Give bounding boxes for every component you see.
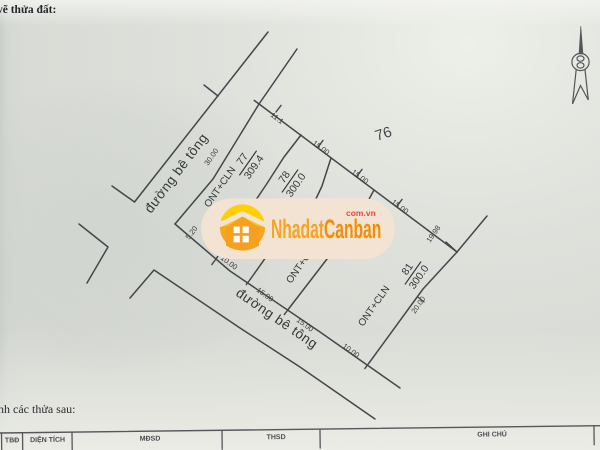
svg-text:MĐSD: MĐSD [140,436,161,443]
svg-text:DIỆN TÍCH: DIỆN TÍCH [30,435,65,444]
svg-text:GHI CHÚ: GHI CHÚ [477,429,507,438]
svg-text:NhadatCanban: NhadatCanban [271,214,381,244]
svg-text:THSD: THSD [267,434,286,441]
svg-text:TBĐ: TBĐ [5,437,19,444]
svg-text:com.vn: com.vn [346,208,376,218]
svg-text:vẽ thửa đất:: vẽ thửa đất: [0,3,56,16]
svg-text:nh các thửa sau:: nh các thửa sau: [0,402,75,416]
